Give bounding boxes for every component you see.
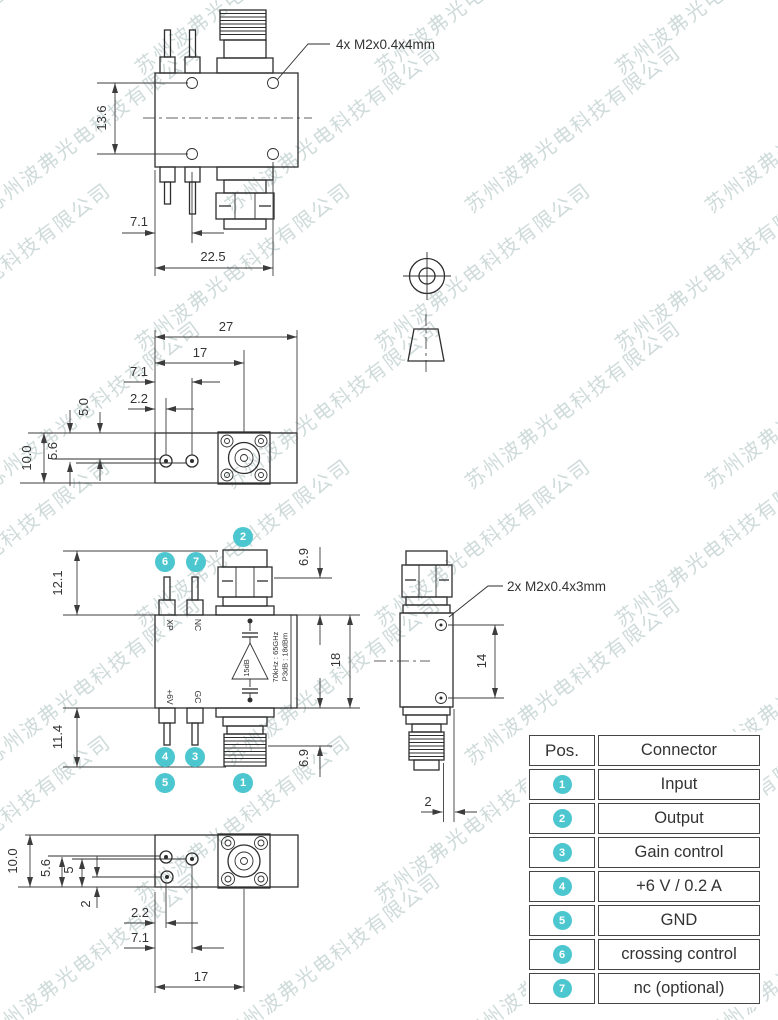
- connector-label: Input: [598, 769, 760, 800]
- pos-badge-7: 7: [553, 979, 572, 998]
- view-top: 13.6 7.1 22.5 4x M2x0.4x4mm: [94, 10, 435, 276]
- connector-label: +6 V / 0.2 A: [598, 871, 760, 902]
- dim-10-0-a: 10.0: [19, 445, 34, 470]
- connector-label: Gain control: [598, 837, 760, 868]
- dim-5-6-b: 5.6: [38, 859, 53, 877]
- table-row: 4 +6 V / 0.2 A: [529, 871, 760, 902]
- pos-badge-4: 4: [553, 877, 572, 896]
- callout-output: 2: [233, 527, 253, 547]
- view-bottom-a: 27 17 7.1 2.2 5.0 5.6 10.0: [19, 319, 297, 486]
- dim-5: 5: [61, 866, 76, 873]
- table-row: 1 Input: [529, 769, 760, 800]
- pos-badge-3: 3: [553, 843, 572, 862]
- callout-crossing-control: 6: [155, 552, 175, 572]
- callout-gnd: 5: [155, 773, 175, 793]
- dim-5-0: 5.0: [76, 398, 91, 416]
- connector-label: crossing control: [598, 939, 760, 970]
- callout-nc: 7: [186, 552, 206, 572]
- connector-label: GND: [598, 905, 760, 936]
- dim-22-5: 22.5: [200, 249, 225, 264]
- pos-badge-6: 6: [553, 945, 572, 964]
- pos-badge-1: 1: [553, 775, 572, 794]
- pos-badge-2: 2: [553, 809, 572, 828]
- callout-gain-control: 3: [185, 747, 205, 767]
- connector-label: Output: [598, 803, 760, 834]
- dim-5-6-a: 5.6: [45, 442, 60, 460]
- dim-27: 27: [219, 319, 233, 334]
- annotation-screws-4x: 4x M2x0.4x4mm: [336, 37, 435, 52]
- dim-2-b: 2: [78, 900, 93, 907]
- table-row: 7 nc (optional): [529, 973, 760, 1004]
- table-row: 2 Output: [529, 803, 760, 834]
- table-header-row: Pos. Connector: [529, 735, 760, 766]
- thread-lines-top: [220, 14, 266, 35]
- dim-2-2-a: 2.2: [130, 391, 148, 406]
- amp-gain-label: 15dB: [242, 659, 251, 677]
- dim-12-1: 12.1: [50, 570, 65, 595]
- dim-7-1-b: 7.1: [131, 930, 149, 945]
- dim-2-side: 2: [424, 794, 431, 809]
- view-bottom-b: 10.0 5.6 5 2 2.2 7.1 17: [5, 834, 298, 993]
- table-row: 3 Gain control: [529, 837, 760, 868]
- table-row: 5 GND: [529, 905, 760, 936]
- amplifier-symbol-icon: 15dB: [232, 619, 268, 703]
- thread-lines-side: [409, 736, 444, 757]
- dim-17-a: 17: [193, 345, 207, 360]
- table-header-pos: Pos.: [529, 735, 595, 766]
- thread-lines-front: [224, 738, 266, 763]
- pin-label-xp: XP: [165, 619, 175, 631]
- drawing-page: 苏州波弗光电科技有限公司苏州波弗光电科技有限公司苏州波弗光电科技有限公司苏州波弗…: [0, 0, 778, 1020]
- annotation-screws-2x: 2x M2x0.4x3mm: [507, 579, 606, 594]
- pos-badge-5: 5: [553, 911, 572, 930]
- view-front: 15dB 70kHz : 65GHz P3dB : 18dBm XP NC +6…: [50, 547, 360, 777]
- projection-symbol: [403, 252, 451, 374]
- amp-spec-p3db: P3dB : 18dBm: [281, 633, 290, 681]
- dim-18: 18: [328, 653, 343, 667]
- table-header-connector: Connector: [598, 735, 760, 766]
- pin-label-6v: +6V: [165, 689, 175, 705]
- pin-label-gc: GC: [193, 691, 203, 704]
- callout-input: 1: [233, 773, 253, 793]
- connector-table: Pos. Connector 1 Input 2 Output 3 Gain c…: [526, 732, 763, 1007]
- dim-14: 14: [474, 654, 489, 668]
- dim-6-9-bottom: 6.9: [296, 749, 311, 767]
- dim-11-4: 11.4: [50, 725, 65, 749]
- amp-spec-frequency: 70kHz : 65GHz: [271, 631, 280, 682]
- dim-7-1-top: 7.1: [130, 214, 148, 229]
- table-row: 6 crossing control: [529, 939, 760, 970]
- dim-6-9-top: 6.9: [296, 548, 311, 566]
- callout-supply: 4: [155, 747, 175, 767]
- pin-label-nc: NC: [193, 619, 203, 631]
- dim-13-6: 13.6: [94, 105, 109, 130]
- dim-2-2-b: 2.2: [131, 905, 149, 920]
- dim-7-1-a: 7.1: [130, 364, 148, 379]
- connector-label: nc (optional): [598, 973, 760, 1004]
- dim-17-b: 17: [194, 969, 208, 984]
- dim-10-0-b: 10.0: [5, 848, 20, 873]
